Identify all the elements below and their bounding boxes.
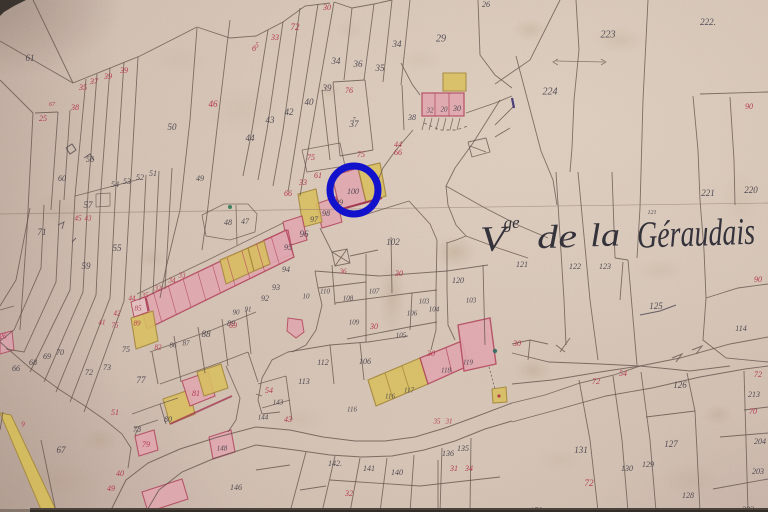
svg-text:87: 87 — [183, 339, 191, 347]
svg-text:41: 41 — [99, 318, 106, 326]
svg-text:73: 73 — [103, 363, 111, 372]
svg-text:39: 39 — [322, 83, 333, 93]
svg-text:222.: 222. — [700, 17, 716, 27]
svg-text:80: 80 — [164, 415, 172, 424]
svg-text:75: 75 — [357, 150, 365, 159]
svg-text:Géraudais: Géraudais — [636, 211, 755, 257]
svg-text:75: 75 — [122, 345, 130, 354]
svg-text:110: 110 — [320, 287, 330, 295]
svg-text:203: 203 — [752, 467, 764, 476]
svg-text:50: 50 — [168, 122, 178, 132]
svg-text:131: 131 — [574, 445, 588, 455]
svg-text:32: 32 — [426, 106, 435, 114]
svg-text:90: 90 — [754, 275, 762, 284]
svg-text:223: 223 — [601, 30, 616, 41]
svg-text:35: 35 — [433, 417, 442, 425]
svg-text:142.: 142. — [328, 459, 342, 468]
svg-text:70: 70 — [56, 348, 64, 357]
svg-text:89: 89 — [134, 319, 142, 327]
svg-text:55: 55 — [113, 243, 123, 253]
svg-text:143: 143 — [273, 398, 284, 406]
svg-text:34: 34 — [331, 56, 342, 66]
svg-text:42: 42 — [114, 309, 122, 317]
svg-text:224: 224 — [543, 87, 558, 98]
svg-text:56: 56 — [86, 155, 94, 164]
svg-text:94: 94 — [282, 265, 290, 274]
svg-text:la: la — [589, 217, 620, 254]
svg-text:59: 59 — [82, 261, 92, 271]
svg-text:39: 39 — [103, 72, 112, 81]
svg-text:26: 26 — [0, 332, 7, 340]
svg-text:109: 109 — [349, 318, 360, 326]
svg-text:30: 30 — [369, 322, 378, 331]
svg-text:70: 70 — [749, 407, 757, 416]
svg-text:97: 97 — [310, 215, 319, 224]
svg-text:126: 126 — [673, 380, 687, 390]
svg-text:48: 48 — [224, 218, 232, 227]
svg-text:125: 125 — [649, 301, 663, 311]
svg-text:77: 77 — [137, 375, 147, 385]
svg-text:113: 113 — [298, 377, 309, 386]
svg-text:31: 31 — [445, 417, 453, 425]
svg-text:75: 75 — [112, 321, 120, 329]
svg-text:121: 121 — [516, 260, 528, 269]
svg-text:141: 141 — [363, 464, 375, 473]
svg-text:95: 95 — [284, 243, 292, 252]
svg-text:35: 35 — [78, 83, 87, 92]
svg-text:67: 67 — [57, 445, 67, 455]
svg-text:32: 32 — [154, 284, 163, 292]
svg-text:30: 30 — [322, 3, 331, 12]
svg-text:76: 76 — [345, 86, 353, 95]
svg-text:123: 123 — [599, 262, 611, 271]
svg-text:107: 107 — [369, 287, 380, 295]
svg-text:118: 118 — [441, 366, 451, 374]
svg-text:136: 136 — [442, 449, 454, 458]
svg-text:38: 38 — [70, 103, 79, 112]
svg-text:43: 43 — [266, 115, 276, 125]
svg-text:60: 60 — [58, 174, 66, 183]
svg-text:130: 130 — [621, 464, 633, 473]
svg-text:49: 49 — [196, 174, 204, 183]
svg-text:72: 72 — [754, 370, 762, 379]
svg-text:68: 68 — [29, 358, 37, 367]
svg-text:ge: ge — [503, 213, 520, 233]
svg-text:43: 43 — [284, 415, 292, 424]
svg-text:105: 105 — [396, 331, 407, 339]
svg-text:79: 79 — [142, 440, 150, 449]
svg-text:36: 36 — [353, 59, 364, 69]
svg-text:221: 221 — [701, 188, 715, 198]
svg-text:112: 112 — [317, 358, 328, 367]
svg-text:34: 34 — [168, 276, 177, 284]
svg-text:116: 116 — [385, 392, 395, 400]
svg-text:30: 30 — [426, 349, 435, 358]
svg-text:72: 72 — [85, 368, 93, 377]
svg-text:72: 72 — [592, 377, 600, 386]
svg-text:26: 26 — [482, 0, 490, 9]
svg-text:129: 129 — [642, 460, 654, 469]
svg-text:91: 91 — [245, 305, 252, 313]
svg-text:93: 93 — [272, 283, 280, 292]
svg-text:127: 127 — [664, 439, 678, 449]
svg-text:9: 9 — [21, 420, 25, 428]
svg-text:40: 40 — [305, 97, 315, 107]
svg-text:75: 75 — [307, 153, 315, 162]
svg-text:33: 33 — [178, 271, 187, 279]
svg-text:51: 51 — [111, 408, 119, 417]
svg-text:220: 220 — [744, 185, 758, 195]
svg-text:61: 61 — [314, 171, 322, 180]
svg-text:103: 103 — [419, 297, 430, 305]
svg-text:53: 53 — [123, 177, 131, 186]
svg-text:98: 98 — [322, 209, 330, 218]
svg-text:49: 49 — [107, 484, 115, 493]
svg-text:43: 43 — [85, 214, 93, 222]
svg-text:66: 66 — [12, 364, 20, 373]
svg-text:106: 106 — [359, 357, 371, 366]
svg-text:66: 66 — [394, 148, 402, 157]
svg-text:213: 213 — [748, 390, 760, 399]
svg-text:46: 46 — [209, 99, 219, 109]
svg-text:117: 117 — [404, 386, 414, 394]
svg-text:78: 78 — [133, 425, 141, 434]
svg-text:34: 34 — [464, 464, 473, 473]
svg-text:35: 35 — [141, 291, 150, 299]
svg-text:88: 88 — [202, 329, 212, 339]
svg-text:29: 29 — [436, 34, 446, 45]
svg-text:54: 54 — [111, 180, 119, 189]
svg-text:20: 20 — [441, 105, 449, 113]
svg-text:54: 54 — [619, 369, 627, 378]
svg-text:69: 69 — [229, 321, 237, 330]
svg-text:32: 32 — [344, 489, 353, 498]
svg-text:148: 148 — [217, 444, 228, 452]
svg-text:116: 116 — [347, 405, 357, 413]
svg-text:57: 57 — [84, 200, 94, 210]
svg-text:47: 47 — [241, 217, 250, 226]
svg-text:66: 66 — [284, 189, 292, 198]
svg-text:42: 42 — [285, 107, 295, 117]
svg-text:106: 106 — [407, 309, 418, 317]
svg-text:36: 36 — [339, 267, 348, 275]
svg-text:103: 103 — [466, 296, 477, 304]
svg-text:34: 34 — [392, 39, 403, 49]
svg-text:122: 122 — [569, 262, 581, 271]
svg-text:90: 90 — [233, 308, 241, 316]
svg-text:5: 5 — [255, 41, 259, 49]
svg-text:40: 40 — [116, 469, 124, 478]
svg-text:96: 96 — [300, 229, 310, 239]
svg-text:25: 25 — [39, 114, 47, 123]
svg-text:38: 38 — [407, 113, 416, 122]
svg-text:71: 71 — [38, 227, 47, 237]
svg-text:61: 61 — [26, 53, 35, 63]
svg-text:51: 51 — [149, 169, 157, 178]
svg-text:108: 108 — [343, 294, 354, 302]
svg-text:31: 31 — [449, 464, 458, 473]
svg-text:37: 37 — [89, 77, 99, 86]
svg-text:30: 30 — [394, 269, 403, 278]
svg-text:10: 10 — [303, 292, 311, 300]
svg-text:35: 35 — [375, 63, 386, 73]
svg-text:33: 33 — [270, 33, 279, 42]
svg-text:81: 81 — [192, 389, 200, 398]
svg-text:82: 82 — [155, 343, 163, 351]
svg-text:119: 119 — [463, 358, 473, 366]
svg-text:120: 120 — [452, 276, 464, 285]
svg-text:72: 72 — [585, 478, 595, 488]
svg-text:45: 45 — [75, 214, 83, 222]
svg-text:72: 72 — [291, 22, 301, 32]
svg-text:44: 44 — [129, 294, 137, 302]
svg-text:144: 144 — [258, 413, 269, 421]
svg-text:44: 44 — [394, 140, 402, 149]
svg-text:104: 104 — [429, 305, 440, 313]
svg-text:100: 100 — [347, 187, 359, 196]
svg-text:39: 39 — [119, 66, 128, 75]
svg-text:85: 85 — [135, 304, 143, 312]
svg-text:128: 128 — [682, 491, 694, 500]
svg-text:de: de — [536, 219, 577, 256]
svg-text:33: 33 — [298, 178, 307, 187]
svg-text:30: 30 — [512, 339, 521, 348]
svg-text:102: 102 — [386, 237, 400, 247]
svg-text:204: 204 — [754, 437, 766, 446]
svg-text:140: 140 — [391, 468, 403, 477]
svg-text:69: 69 — [43, 352, 51, 361]
svg-text:54: 54 — [265, 386, 273, 395]
svg-text:92: 92 — [261, 294, 269, 303]
svg-text:114: 114 — [735, 324, 746, 333]
svg-text:30: 30 — [452, 104, 461, 113]
svg-text:90: 90 — [745, 102, 753, 111]
svg-text:86: 86 — [170, 341, 178, 349]
svg-text:44: 44 — [246, 133, 256, 143]
svg-text:67: 67 — [49, 102, 56, 108]
svg-text:146: 146 — [230, 483, 242, 492]
svg-text:52: 52 — [136, 173, 144, 182]
svg-text:135: 135 — [457, 444, 469, 453]
